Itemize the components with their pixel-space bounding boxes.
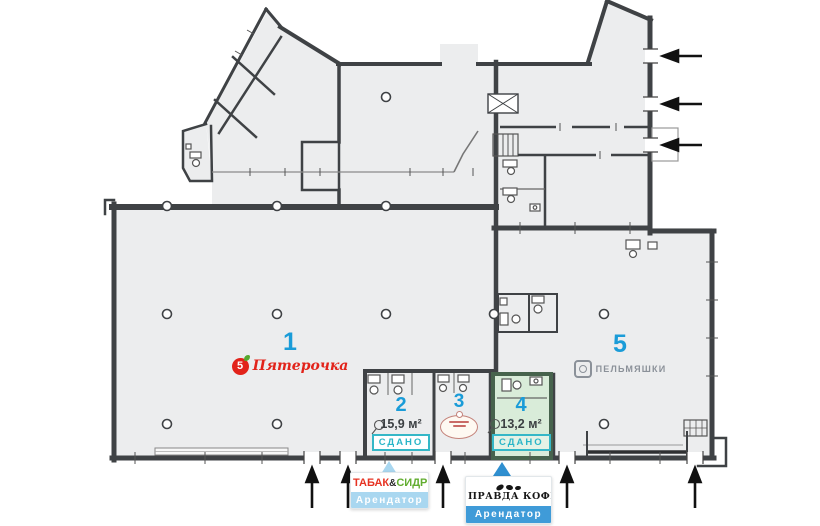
unit-2-number: 2: [369, 395, 433, 416]
unit-3-number: 3: [437, 392, 481, 412]
unit-3-label: 3: [437, 392, 481, 439]
unit-2-status-badge[interactable]: СДАНО: [372, 434, 431, 451]
pelmyashki-text: ПЕЛЬМЯШКИ: [596, 365, 667, 374]
top-bump-floor: [440, 44, 478, 64]
unit-4-number: 4: [492, 395, 550, 416]
floorplan-screenshot: 1 5 Пятерочка 2 15,9 м² СДАНО 3 4 13,2 м…: [0, 0, 820, 526]
tenant-type-badge: Арендатор: [466, 506, 551, 523]
pyaterochka-text: Пятерочка: [253, 359, 349, 374]
tenant-card-tabak-sidr[interactable]: ТАБАК&СИДР Арендатор: [350, 472, 429, 509]
coffee-beans-icon: [466, 477, 551, 490]
top-right-floor: [496, 2, 650, 230]
mid-top-floor: [338, 62, 496, 210]
elevator-shaft: [488, 94, 518, 113]
unit-3-tenant-logo: [440, 415, 478, 439]
card2-pointer-triangle: [493, 462, 511, 476]
tenant-type-badge: Арендатор: [351, 492, 428, 508]
pyaterochka-icon: 5: [232, 358, 249, 375]
tabak-sidr-brand: ТАБАК&СИДР: [351, 473, 428, 492]
pelmyashki-icon: [574, 360, 592, 378]
unit-5-number: 5: [572, 331, 668, 357]
unit-4-status-badge[interactable]: СДАНО: [492, 434, 551, 451]
unit-4-area-text: 13,2 м²: [492, 418, 550, 431]
unit-2-label: 2 15,9 м² СДАНО: [369, 395, 433, 451]
unit-2-area-text: 15,9 м²: [369, 418, 433, 431]
shaft-block: [302, 142, 339, 190]
pelmyashki-logo: ПЕЛЬМЯШКИ: [572, 360, 668, 378]
unit-4-label: 4 13,2 м² СДАНО: [492, 395, 550, 451]
pravda-kofe-brand: ПРАВДА КОФЕ: [466, 490, 551, 506]
unit-1-label: 1 5 Пятерочка: [235, 329, 345, 375]
unit-5-label: 5 ПЕЛЬМЯШКИ: [572, 331, 668, 378]
logo-crown-icon: [456, 411, 463, 418]
pyaterochka-logo: 5 Пятерочка: [235, 358, 345, 375]
leaf-icon: [244, 355, 250, 361]
tenant-card-pravda-kofe[interactable]: ПРАВДА КОФЕ Арендатор: [465, 476, 552, 524]
unit-1-number: 1: [235, 329, 345, 355]
